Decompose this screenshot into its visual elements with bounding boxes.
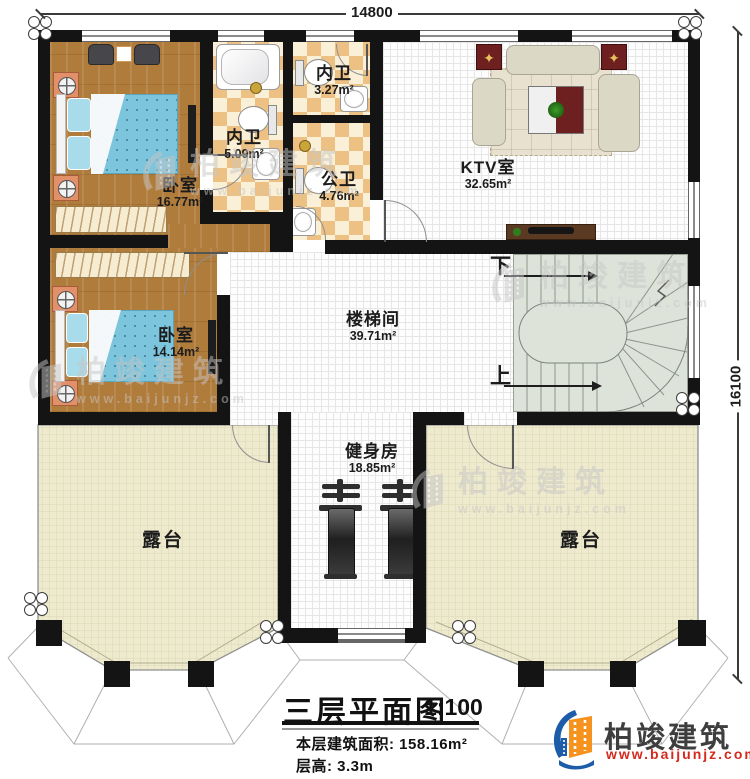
dimension-line-right xyxy=(737,32,739,680)
lamp-icon xyxy=(57,385,75,403)
wall xyxy=(213,212,283,224)
weight-bench-post xyxy=(397,479,403,502)
title-underline xyxy=(282,721,479,725)
wall xyxy=(405,628,426,643)
wall xyxy=(517,412,700,425)
wall xyxy=(278,628,338,643)
room-area: 5.09m² xyxy=(211,147,277,161)
wall xyxy=(38,412,230,425)
room-name: 露台 xyxy=(128,530,198,551)
bathtub-basin xyxy=(221,49,269,85)
drawing-scale: 1:100 xyxy=(424,694,483,721)
dimension-width: 14800 xyxy=(346,4,398,21)
column-marker xyxy=(260,620,286,644)
pillar xyxy=(104,661,130,687)
brand-logo-icon xyxy=(548,708,598,770)
window xyxy=(572,30,672,42)
bed-headboard xyxy=(55,310,65,382)
wall xyxy=(270,224,283,252)
wall xyxy=(283,42,293,252)
dimension-height: 16100 xyxy=(727,361,744,413)
pillow xyxy=(66,347,88,377)
room-label-stair-hall: 楼梯间 39.71m² xyxy=(332,310,414,343)
lamp-icon xyxy=(58,180,76,198)
plant-icon xyxy=(513,228,521,236)
column-marker xyxy=(676,392,702,416)
pillar xyxy=(36,620,62,646)
plant-icon xyxy=(548,102,564,118)
room-name: 内卫 xyxy=(211,128,277,147)
window xyxy=(688,182,700,238)
wall xyxy=(278,412,291,643)
shower-knob-icon xyxy=(299,140,311,152)
floor-plan-canvas: ✦ ✦ xyxy=(0,0,750,779)
room-name: 露台 xyxy=(546,530,616,551)
column-marker xyxy=(452,620,478,644)
wall xyxy=(325,240,383,254)
floor-area-label: 本层建筑面积: xyxy=(296,736,395,753)
brand-website: www.baijunjz.com xyxy=(606,746,750,762)
room-area: 16.77m² xyxy=(140,195,220,209)
lamp-table: ✦ xyxy=(601,44,627,70)
room-name: 卧室 xyxy=(140,176,220,195)
column-marker xyxy=(28,16,54,40)
window xyxy=(688,286,700,378)
room-label-ktv: KTV室 32.65m² xyxy=(446,158,530,191)
weight-bench-pad xyxy=(328,508,355,578)
weight-bench-pad xyxy=(388,508,415,578)
pillar xyxy=(518,661,544,687)
door-leaf xyxy=(184,252,228,254)
sofa-left xyxy=(472,78,506,146)
lamp-table: ✦ xyxy=(476,44,502,70)
wall xyxy=(413,412,426,643)
room-label-bedroom1: 卧室 16.77m² xyxy=(140,176,220,209)
stairs-down-arrow xyxy=(504,275,588,277)
pillar xyxy=(610,661,636,687)
door-leaf xyxy=(268,425,270,463)
tv xyxy=(188,105,196,163)
bed-headboard xyxy=(56,94,66,174)
room-name: 内卫 xyxy=(302,64,366,83)
sofa-right xyxy=(598,74,640,152)
floor-height-line: 层高: 3.3m xyxy=(296,755,373,776)
column-marker xyxy=(24,592,50,616)
nightstand xyxy=(53,175,79,201)
door-leaf xyxy=(366,44,368,76)
room-label-ensuite-master: 内卫 5.09m² xyxy=(211,128,277,161)
pillow xyxy=(67,98,91,132)
wardrobe xyxy=(55,206,167,233)
floor-height-label: 层高: xyxy=(296,758,333,775)
window xyxy=(306,30,354,42)
room-area: 39.71m² xyxy=(332,329,414,343)
gym-door xyxy=(338,628,405,643)
room-name: 卧室 xyxy=(136,326,216,345)
weight-bench-post xyxy=(337,479,343,502)
nightstand xyxy=(52,286,78,312)
room-name: 楼梯间 xyxy=(332,310,414,329)
sofa-top xyxy=(506,45,600,75)
arrow-head-icon xyxy=(588,271,598,281)
wall xyxy=(38,30,50,425)
pillow xyxy=(67,136,91,170)
window xyxy=(420,30,518,42)
floor-area-value: 158.16m² xyxy=(399,736,467,753)
lamp-icon xyxy=(57,291,75,309)
room-label-terrace-right: 露台 xyxy=(546,530,616,551)
shower-knob-icon xyxy=(250,82,262,94)
wall xyxy=(38,235,168,248)
floor-height-value: 3.3m xyxy=(337,758,373,775)
weight-bench-foot xyxy=(324,574,357,579)
armchair xyxy=(88,44,114,65)
wardrobe xyxy=(55,252,190,278)
room-label-ensuite-small: 内卫 3.27m² xyxy=(302,64,366,97)
lamp-icon xyxy=(58,77,76,95)
room-name: 健身房 xyxy=(331,442,413,461)
wall xyxy=(370,240,700,254)
wall xyxy=(217,295,230,412)
room-area: 4.76m² xyxy=(306,189,372,203)
bathtub xyxy=(216,44,280,90)
room-area: 3.27m² xyxy=(302,83,366,97)
door-leaf xyxy=(384,200,386,242)
pillar xyxy=(188,661,214,687)
arrow-head-icon xyxy=(592,381,602,391)
column-marker xyxy=(678,16,704,40)
terrace-doorway-right-floor xyxy=(464,412,517,425)
pillow xyxy=(66,313,88,343)
title-underline-thin xyxy=(282,728,479,730)
room-label-terrace-left: 露台 xyxy=(128,530,198,551)
room-area: 18.85m² xyxy=(331,461,413,475)
stairs-up-arrow xyxy=(504,385,592,387)
side-table xyxy=(116,46,132,62)
armchair xyxy=(134,44,160,65)
room-label-public-bath: 公卫 4.76m² xyxy=(306,170,372,203)
door-leaf xyxy=(512,425,514,469)
flat-tv xyxy=(528,227,574,234)
room-area: 14.14m² xyxy=(136,345,216,359)
window xyxy=(218,30,264,42)
nightstand xyxy=(52,380,78,406)
window xyxy=(82,30,170,42)
room-label-gym: 健身房 18.85m² xyxy=(331,442,413,475)
pillar xyxy=(678,620,706,646)
room-label-bedroom2: 卧室 14.14m² xyxy=(136,326,216,359)
room-area: 32.65m² xyxy=(446,177,530,191)
floor-area-line: 本层建筑面积: 158.16m² xyxy=(296,733,467,754)
room-name: KTV室 xyxy=(446,158,530,177)
wall xyxy=(293,115,370,123)
toilet-tank xyxy=(295,168,304,194)
room-name: 公卫 xyxy=(306,170,372,189)
terrace-doorway-left-floor xyxy=(230,412,278,425)
